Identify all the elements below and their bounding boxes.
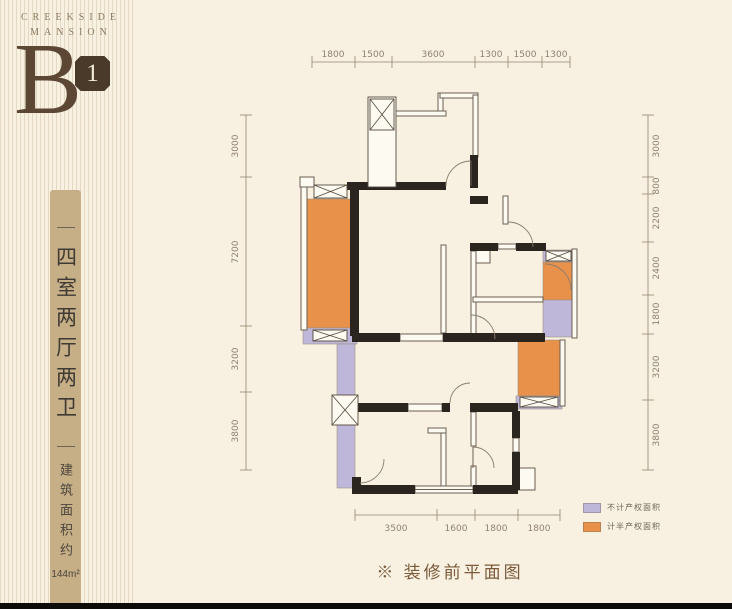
bottom-black-bar — [0, 603, 732, 609]
legend-item-non-counted: 不计产权面积 — [583, 502, 661, 513]
dim-label: 3800 — [231, 419, 241, 442]
plan-caption: ※ 装修前平面图 — [310, 558, 590, 583]
dim-label: 1500 — [514, 50, 537, 60]
dim-label: 2200 — [652, 206, 662, 229]
dim-label: 1800 — [485, 524, 508, 534]
dim-label: 1300 — [480, 50, 503, 60]
dim-label: 1500 — [362, 50, 385, 60]
dim-label: 7200 — [231, 240, 241, 263]
dim-label: 1600 — [445, 524, 468, 534]
dim-label: 1800 — [322, 50, 345, 60]
legend: 不计产权面积 计半产权面积 — [583, 502, 661, 540]
dim-label: 1300 — [545, 50, 568, 60]
dim-label: 1800 — [528, 524, 551, 534]
dim-label: 1800 — [652, 302, 662, 325]
dim-label: 3200 — [231, 347, 241, 370]
legend-label: 不计产权面积 — [607, 502, 661, 513]
dim-label: 3800 — [652, 423, 662, 446]
legend-swatch-orange — [583, 522, 601, 532]
legend-item-half-counted: 计半产权面积 — [583, 521, 661, 532]
legend-label: 计半产权面积 — [607, 521, 661, 532]
dim-label: 3500 — [385, 524, 408, 534]
dim-label: 2400 — [652, 256, 662, 279]
page: CREEKSIDE MANSION B 1 四室两厅两卫 建筑面积约 144m² — [0, 0, 732, 609]
legend-swatch-lavender — [583, 503, 601, 513]
door-arcs — [360, 161, 571, 483]
dim-label: 800 — [652, 177, 662, 194]
dim-label: 3000 — [652, 134, 662, 157]
dim-label: 3200 — [652, 355, 662, 378]
dim-label: 3600 — [422, 50, 445, 60]
dim-label: 3000 — [231, 134, 241, 157]
